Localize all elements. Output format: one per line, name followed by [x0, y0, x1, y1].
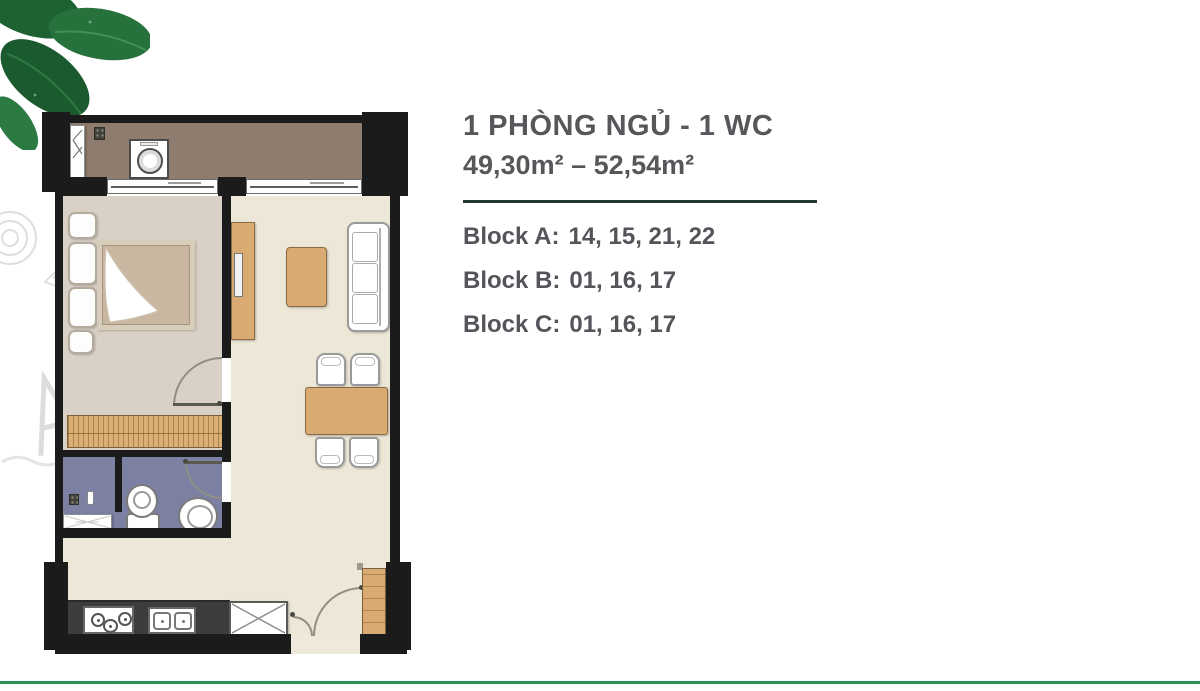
block-label: Block C: [463, 311, 560, 338]
sliding-glass-door-icon [107, 179, 218, 194]
dining-chair-icon [350, 353, 380, 386]
wall-column [362, 112, 408, 196]
block-units: 01, 16, 17 [569, 311, 676, 338]
wall [55, 634, 291, 654]
tv-icon [234, 253, 243, 297]
shoe-cabinet-icon [362, 568, 386, 636]
pillow-icon [68, 212, 97, 239]
wall [390, 192, 400, 567]
pillow-icon [68, 330, 94, 354]
accent-line [0, 681, 1200, 684]
block-row: Block B:01, 16, 17 [463, 267, 715, 295]
wall [218, 177, 246, 196]
gas-stove-icon [83, 606, 134, 634]
page-title: 1 PHÒNG NGỦ - 1 WC [463, 110, 773, 143]
kitchen-sink-icon [148, 607, 196, 634]
bathroom-door-leaf [187, 461, 222, 464]
double-bed-icon [97, 240, 195, 330]
wall [55, 177, 107, 196]
toilet-icon [126, 484, 158, 518]
sofa-icon [347, 222, 390, 332]
wall [62, 528, 231, 538]
bedroom-door-leaf [173, 403, 222, 406]
door-hinge [290, 612, 295, 617]
wardrobe-icon [67, 415, 225, 448]
washing-machine-icon [129, 139, 169, 179]
balcony-floor [62, 123, 362, 179]
washer-panel [140, 142, 158, 146]
wall [62, 450, 225, 457]
block-label: Block B: [463, 267, 560, 294]
louver-window-icon [70, 125, 85, 182]
page: 1 PHÒNG NGỦ - 1 WC 49,30m² – 52,54m² Blo… [0, 0, 1200, 691]
wall [62, 115, 362, 123]
pillow-icon [68, 287, 97, 328]
wall [222, 402, 231, 417]
wall [115, 455, 122, 512]
dining-table-icon [305, 387, 388, 435]
dining-chair-icon [316, 353, 346, 386]
area-range: 49,30m² – 52,54m² [463, 150, 694, 181]
block-list: Block A:14, 15, 21, 22 Block B:01, 16, 1… [463, 223, 715, 355]
sink-basin [153, 612, 171, 630]
coffee-table-icon [286, 247, 327, 307]
block-row: Block A:14, 15, 21, 22 [463, 223, 715, 251]
divider-line [463, 200, 817, 203]
sofa-cushion [352, 263, 378, 293]
wall [222, 196, 231, 358]
block-units: 01, 16, 17 [569, 267, 676, 294]
dining-chair-icon [315, 437, 345, 468]
shower-drain-icon [69, 494, 79, 505]
washer-drum [137, 148, 163, 174]
balcony-drain-icon [94, 127, 105, 140]
blanket-icon [97, 240, 195, 330]
pillow-icon [68, 242, 97, 285]
sofa-cushion [352, 294, 378, 324]
sofa-cushion [352, 232, 378, 262]
door-hinge [183, 459, 188, 464]
block-row: Block C:01, 16, 17 [463, 311, 715, 339]
sliding-glass-door-icon [246, 179, 362, 194]
burner [103, 619, 118, 633]
sink-basin [174, 612, 192, 630]
wall [360, 634, 407, 654]
burner [118, 612, 132, 626]
entry-threshold [291, 634, 360, 654]
block-units: 14, 15, 21, 22 [568, 223, 715, 250]
dining-chair-icon [349, 437, 379, 468]
tv-console-icon [231, 222, 255, 340]
toiletries-bottle-icon [87, 491, 94, 505]
fridge-icon [229, 601, 288, 636]
block-label: Block A: [463, 223, 559, 250]
